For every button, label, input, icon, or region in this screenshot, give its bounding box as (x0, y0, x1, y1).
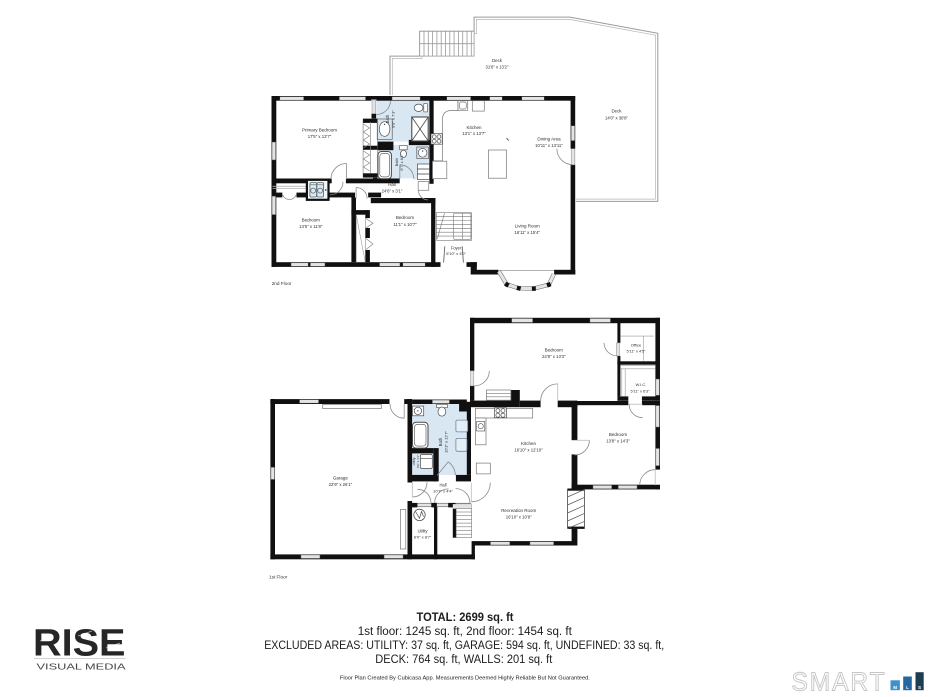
svg-text:L: L (906, 685, 909, 690)
svg-text:13'1" x 13'7": 13'1" x 13'7" (462, 131, 486, 136)
svg-text:Hall: Hall (439, 483, 446, 488)
svg-text:14'0" x 30'8": 14'0" x 30'8" (605, 115, 628, 120)
svg-text:Dining Area: Dining Area (537, 137, 561, 142)
svg-text:Foyer: Foyer (451, 245, 462, 250)
svg-text:5'11" x 6'3": 5'11" x 6'3" (631, 388, 651, 393)
svg-text:24'6" x 3'1": 24'6" x 3'1" (382, 188, 403, 193)
svg-text:M: M (893, 685, 897, 690)
svg-text:Bath: Bath (438, 437, 443, 446)
svg-text:1st floor: 1245 sq. ft, 2nd fl: 1st floor: 1245 sq. ft, 2nd floor: 1454 … (358, 624, 573, 638)
svg-text:22'9" x 26'1": 22'9" x 26'1" (329, 482, 353, 487)
svg-text:Bedroom: Bedroom (302, 217, 321, 222)
svg-text:Floor Plan Created By Cubicasa: Floor Plan Created By Cubicasa App. Meas… (340, 675, 590, 681)
svg-text:Deck: Deck (492, 58, 503, 63)
svg-text:Kitchen: Kitchen (521, 441, 537, 446)
svg-text:Recreation Room: Recreation Room (501, 508, 536, 513)
svg-text:S: S (918, 685, 921, 690)
svg-text:TOTAL: 2699 sq. ft: TOTAL: 2699 sq. ft (417, 610, 514, 624)
svg-text:Utility: Utility (418, 528, 429, 533)
svg-text:Bedroom: Bedroom (545, 347, 564, 352)
svg-text:10'11" x 13'11": 10'11" x 13'11" (535, 143, 563, 148)
svg-text:Bath: Bath (385, 114, 390, 123)
svg-text:2nd Floor: 2nd Floor (272, 281, 292, 286)
svg-text:W.I.C.: W.I.C. (636, 382, 647, 387)
svg-text:EXCLUDED AREAS: UTILITY: 37 sq: EXCLUDED AREAS: UTILITY: 37 sq. ft, GARA… (264, 638, 664, 652)
svg-text:16'10" x 10'9": 16'10" x 10'9" (506, 515, 532, 520)
svg-text:Living Room: Living Room (515, 223, 540, 228)
svg-text:VISUAL MEDIA: VISUAL MEDIA (37, 662, 127, 671)
svg-text:DECK: 764 sq. ft, WALLS: 201 s: DECK: 764 sq. ft, WALLS: 201 sq. ft (375, 652, 552, 666)
svg-text:Utility: Utility (412, 457, 416, 465)
svg-text:Kitchen: Kitchen (466, 125, 482, 130)
svg-text:3'6" x 4'1": 3'6" x 4'1" (416, 455, 420, 469)
svg-text:6'0" x 8'7": 6'0" x 8'7" (414, 534, 432, 539)
svg-text:Bedroom: Bedroom (609, 432, 628, 437)
svg-text:RISE: RISE (33, 623, 125, 665)
svg-text:16'10" x 12'10": 16'10" x 12'10" (514, 448, 543, 453)
svg-text:Office: Office (631, 342, 642, 347)
svg-text:11'1" x 10'7": 11'1" x 10'7" (393, 222, 417, 227)
svg-text:31'6" x 13'2": 31'6" x 13'2" (486, 64, 509, 69)
svg-text:Bedroom: Bedroom (396, 215, 415, 220)
svg-text:24'8" x 13'3": 24'8" x 13'3" (542, 354, 566, 359)
svg-text:Garage: Garage (333, 475, 349, 480)
svg-text:17'5" x 13'7": 17'5" x 13'7" (308, 134, 332, 139)
svg-text:10'7" x 4'4": 10'7" x 4'4" (433, 489, 453, 494)
svg-text:6'7" x 6'1": 6'7" x 6'1" (400, 153, 404, 170)
svg-text:SMART: SMART (792, 668, 887, 696)
svg-text:Deck: Deck (611, 108, 622, 113)
svg-text:Bath: Bath (394, 158, 399, 166)
svg-text:5'11" x 4'5": 5'11" x 4'5" (627, 349, 647, 354)
svg-text:13'5" x 11'8": 13'5" x 11'8" (299, 224, 323, 229)
svg-text:Primary Bedroom: Primary Bedroom (302, 127, 337, 132)
svg-text:16'11" x 15'4": 16'11" x 15'4" (514, 230, 540, 235)
svg-text:5'10" x 4'0": 5'10" x 4'0" (446, 251, 466, 256)
svg-text:13'8" x 14'3": 13'8" x 14'3" (606, 439, 630, 444)
svg-text:8'8" x 7'3": 8'8" x 7'3" (390, 110, 395, 128)
svg-text:10'3" x 12'7": 10'3" x 12'7" (444, 430, 449, 453)
svg-text:1st Floor: 1st Floor (269, 574, 288, 579)
svg-text:Hall: Hall (388, 182, 396, 187)
